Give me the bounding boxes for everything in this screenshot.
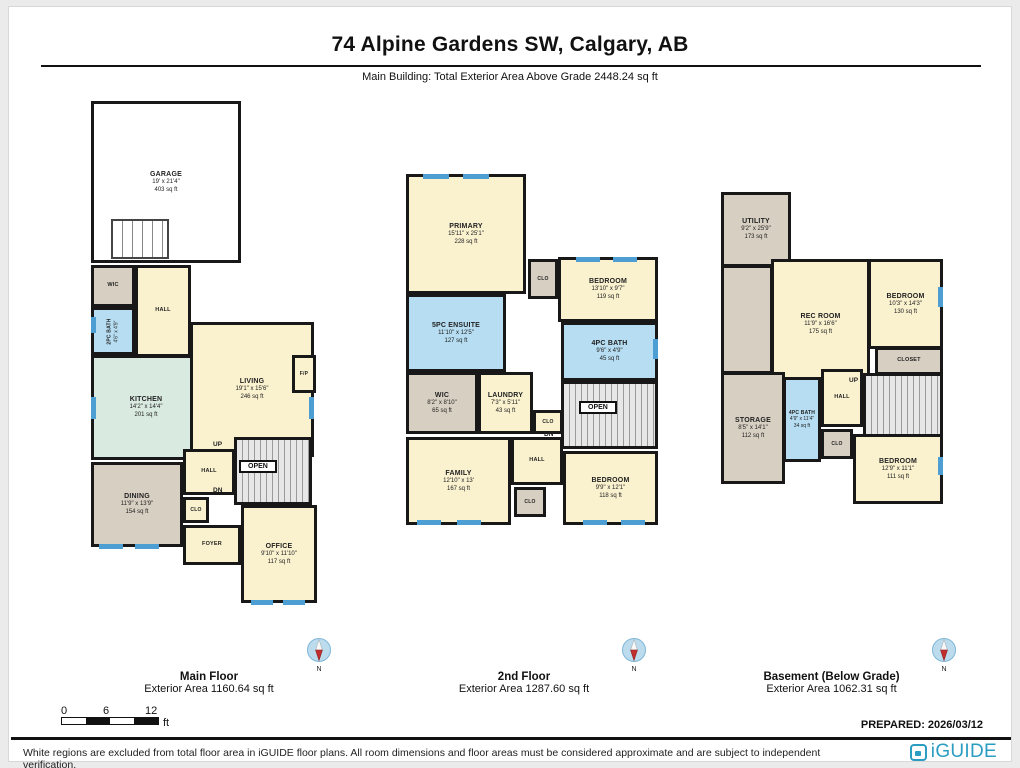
room-wic: WIC <box>91 265 135 307</box>
stairs-open-label: OPEN <box>239 460 277 473</box>
room-dims: 10'3" x 14'3" <box>889 301 922 309</box>
caption-main-floor: Main Floor Exterior Area 1160.64 sq ft <box>69 671 349 695</box>
room-label: BEDROOM <box>879 457 917 466</box>
room-area: 119 sq ft <box>597 294 620 302</box>
room-hall-upper: HALL <box>135 265 191 357</box>
floor-area: Exterior Area 1062.31 sq ft <box>689 683 974 695</box>
room-area: 118 sq ft <box>599 493 622 501</box>
room-label: 2PC BATH 4'6" x 4'9" <box>106 318 119 344</box>
iguide-logo-icon <box>910 744 927 761</box>
iguide-logo-text: iGUIDE <box>931 741 997 763</box>
stairs-up-label: UP <box>213 441 222 448</box>
room-dims: 14'2" x 14'4" <box>130 404 163 412</box>
room-dining: DINING 11'9" x 13'9" 154 sq ft <box>91 462 183 547</box>
page-subtitle: Main Building: Total Exterior Area Above… <box>9 71 1011 83</box>
scale-bar: 0 6 12 ft <box>61 705 211 725</box>
room-area: 175 sq ft <box>809 329 832 337</box>
room-closet-top: CLO <box>528 259 558 299</box>
page-title: 74 Alpine Gardens SW, Calgary, AB <box>9 33 1011 57</box>
room-closet-big: CLOSET <box>875 347 943 375</box>
room-area: 130 sq ft <box>894 309 917 317</box>
window-marker <box>938 457 943 475</box>
iguide-logo: iGUIDE <box>910 741 997 763</box>
compass-icon <box>929 637 959 663</box>
room-label: CLO <box>524 499 535 506</box>
room-label: WIC <box>107 282 118 289</box>
room-label: FAMILY <box>445 469 471 478</box>
room-primary: PRIMARY 15'11" x 25'1" 228 sq ft <box>406 174 526 294</box>
room-laundry: LAUNDRY 7'3" x 5'11" 43 sq ft <box>478 372 533 434</box>
room-label: UTILITY <box>742 217 770 226</box>
floor-area: Exterior Area 1160.64 sq ft <box>69 683 349 695</box>
room-bedroom-upper: BEDROOM 10'3" x 14'3" 130 sq ft <box>868 259 943 349</box>
compass-icon <box>304 637 334 663</box>
room-4pc-bath-basement: 4PC BATH 4'9" x 11'4" 34 sq ft <box>783 377 821 462</box>
room-dims: 9'6" x 4'9" <box>596 348 622 356</box>
main-floor-plan: GARAGE 19' x 21'4" 403 sq ft WIC HALL 2P… <box>89 97 326 610</box>
room-label: LIVING <box>240 377 265 386</box>
scale-segment <box>86 718 110 724</box>
room-label: STORAGE <box>735 416 771 425</box>
room-label: WIC <box>435 391 449 400</box>
room-label: KITCHEN <box>130 395 163 404</box>
room-area: 45 sq ft <box>600 356 620 364</box>
window-marker <box>135 544 159 549</box>
scale-segment <box>110 718 134 724</box>
room-label: CLO <box>831 441 842 448</box>
caption-2nd-floor: 2nd Floor Exterior Area 1287.60 sq ft <box>384 671 664 695</box>
scale-tick-6: 6 <box>103 705 109 717</box>
room-wic-2nd: WIC 8'2" x 8'10" 65 sq ft <box>406 372 478 434</box>
room-foyer: FOYER <box>183 525 241 565</box>
second-floor-plan: PRIMARY 15'11" x 25'1" 228 sq ft 5PC ENS… <box>401 169 661 529</box>
scale-bar-segments <box>61 717 159 725</box>
room-label: LAUNDRY <box>488 391 523 400</box>
room-label: HALL <box>155 307 170 314</box>
room-area: 117 sq ft <box>268 559 291 567</box>
room-area: 154 sq ft <box>125 509 148 517</box>
room-dims: 11'10" x 12'5" <box>438 330 474 338</box>
compass-main: N <box>302 637 336 673</box>
stairs-dn-label: DN <box>544 431 553 438</box>
room-closet-basement: CLO <box>821 429 853 459</box>
scale-segment <box>62 718 86 724</box>
room-label: HALL <box>529 457 544 464</box>
window-marker <box>653 339 658 359</box>
window-marker <box>457 520 481 525</box>
room-dims: 12'9" x 11'1" <box>882 466 914 474</box>
room-utility: UTILITY 9'2" x 25'9" 173 sq ft <box>721 192 791 267</box>
room-fireplace: F/P <box>292 355 316 393</box>
room-label: OFFICE <box>266 542 293 551</box>
room-area: 65 sq ft <box>432 408 452 416</box>
room-closet-lower: CLO <box>514 487 546 517</box>
stairs-dn-label: DN <box>213 487 222 494</box>
window-marker <box>621 520 645 525</box>
room-dims: 8'5" x 14'1" <box>738 425 768 433</box>
room-label: 5PC ENSUITE <box>432 321 480 330</box>
room-label: DINING <box>124 492 150 501</box>
room-label: BEDROOM <box>592 476 630 485</box>
scale-tick-0: 0 <box>61 705 67 717</box>
room-label: HALL <box>834 394 849 401</box>
room-area: 127 sq ft <box>444 338 467 346</box>
room-bedroom-rear: BEDROOM 9'9" x 12'1" 118 sq ft <box>563 451 658 525</box>
floorplan-sheet: 74 Alpine Gardens SW, Calgary, AB Main B… <box>0 0 1020 768</box>
compass-2nd: N <box>617 637 651 673</box>
caption-basement: Basement (Below Grade) Exterior Area 106… <box>689 671 974 695</box>
footer-disclaimer: White regions are excluded from total fl… <box>23 747 823 768</box>
room-area: 403 sq ft <box>154 187 177 195</box>
room-label: CLO <box>537 276 548 283</box>
basement-plan: UTILITY 9'2" x 25'9" 173 sq ft REC ROOM … <box>715 187 949 507</box>
window-marker <box>463 174 489 179</box>
room-hall-lower: HALL <box>183 449 235 495</box>
room-label: CLO <box>190 507 201 514</box>
window-marker <box>583 520 607 525</box>
room-dims: 9'10" x 11'10" <box>261 551 297 559</box>
room-label: CLOSET <box>897 357 921 364</box>
window-marker <box>417 520 441 525</box>
room-label: 4PC BATH <box>591 339 627 348</box>
page-background: 74 Alpine Gardens SW, Calgary, AB Main B… <box>8 6 1012 762</box>
room-storage: STORAGE 8'5" x 14'1" 112 sq ft <box>721 372 785 484</box>
scale-unit: ft <box>163 717 169 729</box>
room-area: 111 sq ft <box>887 474 909 482</box>
room-label: CLO <box>542 419 553 426</box>
room-area: 201 sq ft <box>134 412 157 420</box>
room-dims: 19'1" x 15'6" <box>236 386 269 394</box>
iguide-logo-dot <box>915 751 921 756</box>
prepared-date: PREPARED: 2026/03/12 <box>861 719 983 731</box>
room-office: OFFICE 9'10" x 11'10" 117 sq ft <box>241 505 317 603</box>
room-area: 167 sq ft <box>447 486 470 494</box>
room-dims: 9'9" x 12'1" <box>596 485 626 493</box>
stairs-open-label: OPEN <box>579 401 617 414</box>
stairs-2nd <box>561 381 658 449</box>
room-label: PRIMARY <box>449 222 482 231</box>
room-dims: 19' x 21'4" <box>152 179 179 187</box>
floor-name: 2nd Floor <box>384 671 664 683</box>
window-marker <box>576 257 600 262</box>
room-dims: 15'11" x 25'1" <box>448 231 484 239</box>
room-kitchen: KITCHEN 14'2" x 14'4" 201 sq ft <box>91 355 201 460</box>
room-4pc-bath: 4PC BATH 9'6" x 4'9" 45 sq ft <box>561 322 658 381</box>
room-dims: 13'10" x 9'7" <box>592 286 625 294</box>
room-area: 246 sq ft <box>240 394 263 402</box>
window-marker <box>251 600 273 605</box>
room-label: BEDROOM <box>589 277 627 286</box>
room-hall-2nd: HALL <box>511 437 563 485</box>
room-bedroom-lower: BEDROOM 12'9" x 11'1" 111 sq ft <box>853 434 943 504</box>
room-area: 173 sq ft <box>744 234 767 242</box>
room-area: 43 sq ft <box>496 408 516 416</box>
room-dims: 8'2" x 8'10" <box>427 400 457 408</box>
room-bedroom-front: BEDROOM 13'10" x 9'7" 119 sq ft <box>558 257 658 322</box>
room-dims: 7'3" x 5'11" <box>491 400 520 408</box>
scale-tick-12: 12 <box>145 705 157 717</box>
window-marker <box>91 397 96 419</box>
room-area: 112 sq ft <box>742 433 765 441</box>
garage-stairs <box>111 219 169 259</box>
room-area: 228 sq ft <box>454 239 477 247</box>
room-closet-main: CLO <box>183 497 209 523</box>
scale-numbers: 0 6 12 <box>61 705 211 717</box>
floor-name: Basement (Below Grade) <box>689 671 974 683</box>
scale-segment <box>134 718 158 724</box>
room-label: HALL <box>201 468 216 475</box>
room-family: FAMILY 12'10" x 13' 167 sq ft <box>406 437 511 525</box>
floor-name: Main Floor <box>69 671 349 683</box>
room-dims: 12'10" x 13' <box>443 478 474 486</box>
room-label: F/P <box>300 371 308 378</box>
window-marker <box>613 257 637 262</box>
room-label: FOYER <box>202 541 222 548</box>
title-divider <box>41 65 981 67</box>
window-marker <box>309 397 314 419</box>
basement-left-column <box>721 265 773 374</box>
room-label: GARAGE <box>150 170 182 179</box>
room-dims: 11'9" x 16'6" <box>804 321 836 329</box>
stairs-up-label: UP <box>849 377 858 384</box>
compass-basement: N <box>927 637 961 673</box>
room-dims: 9'2" x 25'9" <box>741 226 771 234</box>
footer-divider <box>11 737 1011 740</box>
window-marker <box>283 600 305 605</box>
compass-icon <box>619 637 649 663</box>
floor-area: Exterior Area 1287.60 sq ft <box>384 683 664 695</box>
window-marker <box>938 287 943 307</box>
room-area: 34 sq ft <box>794 423 810 430</box>
room-2pc-bath: 2PC BATH 4'6" x 4'9" <box>91 307 135 355</box>
room-dims: 11'9" x 13'9" <box>121 501 153 509</box>
room-label: BEDROOM <box>887 292 925 301</box>
window-marker <box>99 544 123 549</box>
room-ensuite: 5PC ENSUITE 11'10" x 12'5" 127 sq ft <box>406 294 506 372</box>
window-marker <box>91 317 96 333</box>
window-marker <box>423 174 449 179</box>
stairs-basement <box>863 373 943 441</box>
room-label: REC ROOM <box>800 312 840 321</box>
